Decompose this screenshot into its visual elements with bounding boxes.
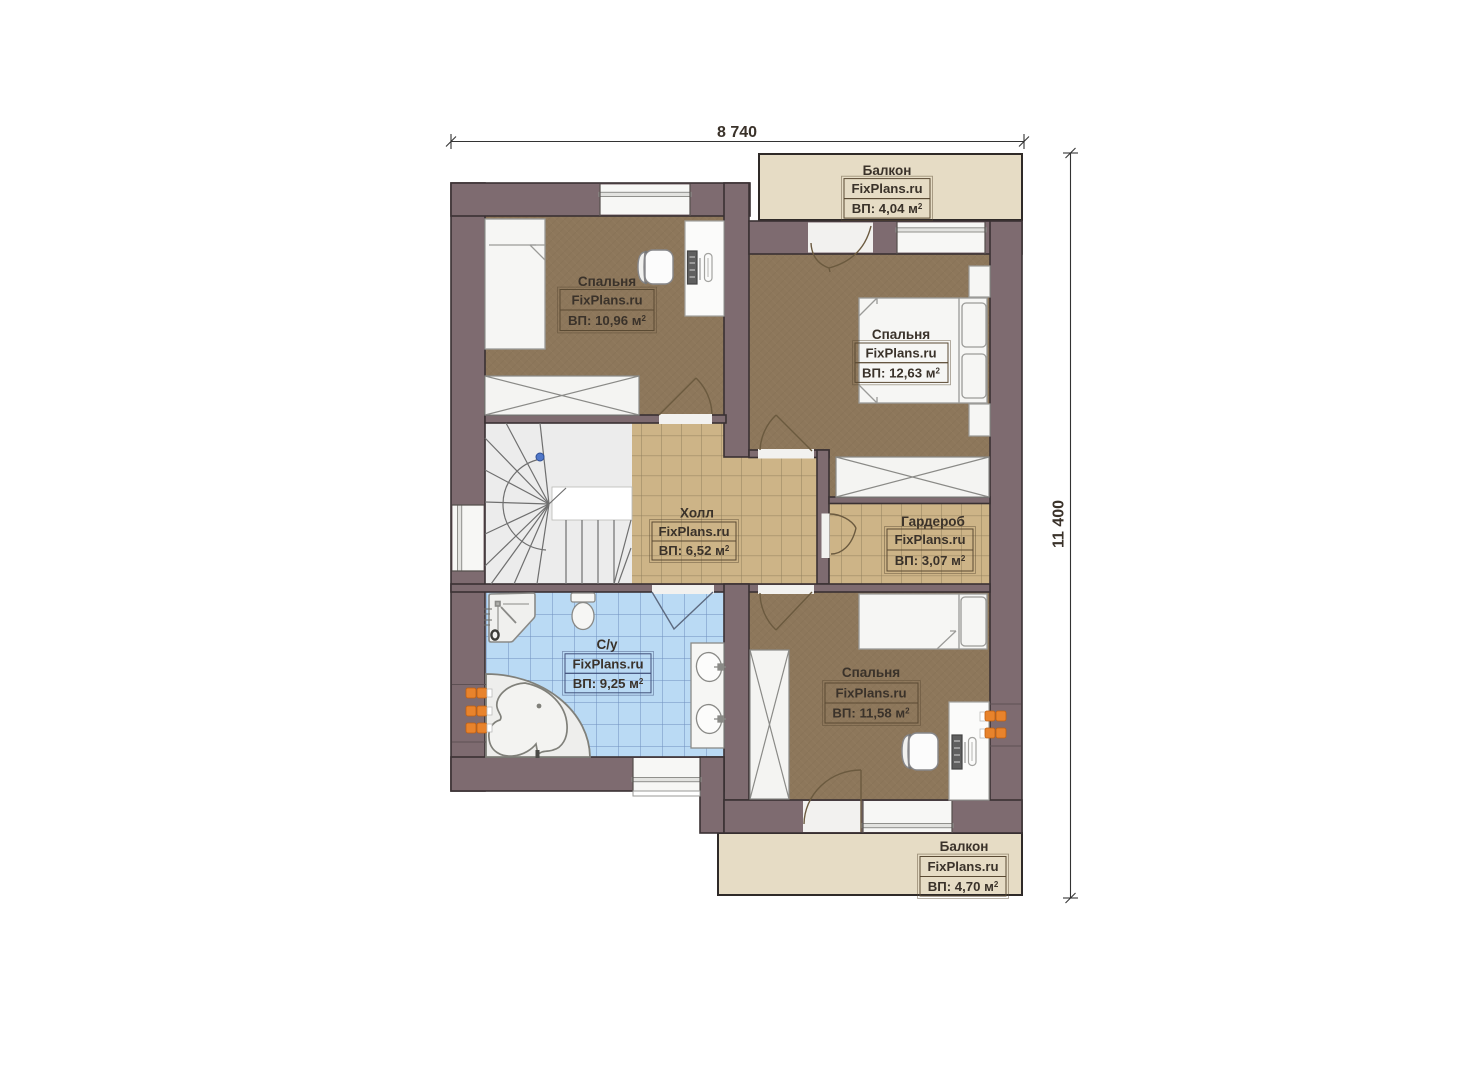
svg-text:ВП: 11,58 м2: ВП: 11,58 м2 [832, 706, 910, 721]
svg-text:ВП: 4,04 м2: ВП: 4,04 м2 [852, 201, 923, 216]
svg-text:ВП: 9,25 м2: ВП: 9,25 м2 [573, 676, 644, 691]
svg-text:FixPlans.ru: FixPlans.ru [571, 293, 642, 308]
svg-text:Спальня: Спальня [842, 665, 900, 680]
svg-text:FixPlans.ru: FixPlans.ru [851, 181, 922, 196]
svg-text:11 400: 11 400 [1051, 500, 1068, 548]
svg-text:Холл: Холл [680, 506, 714, 521]
svg-text:Балкон: Балкон [940, 839, 989, 854]
svg-text:Спальня: Спальня [872, 327, 930, 342]
svg-text:FixPlans.ru: FixPlans.ru [894, 532, 965, 547]
svg-text:FixPlans.ru: FixPlans.ru [658, 524, 729, 539]
svg-text:FixPlans.ru: FixPlans.ru [927, 859, 998, 874]
svg-text:ВП: 3,07 м2: ВП: 3,07 м2 [895, 553, 966, 568]
svg-text:FixPlans.ru: FixPlans.ru [835, 686, 906, 701]
svg-text:ВП: 4,70 м2: ВП: 4,70 м2 [928, 879, 999, 894]
svg-text:С/у: С/у [596, 637, 618, 652]
svg-text:Балкон: Балкон [863, 163, 912, 178]
svg-text:ВП: 10,96 м2: ВП: 10,96 м2 [568, 313, 646, 328]
svg-text:ВП: 6,52 м2: ВП: 6,52 м2 [659, 543, 730, 558]
svg-text:FixPlans.ru: FixPlans.ru [865, 346, 936, 361]
svg-text:FixPlans.ru: FixPlans.ru [572, 656, 643, 671]
svg-text:ВП: 12,63 м2: ВП: 12,63 м2 [862, 365, 940, 380]
svg-text:8 740: 8 740 [717, 124, 757, 141]
